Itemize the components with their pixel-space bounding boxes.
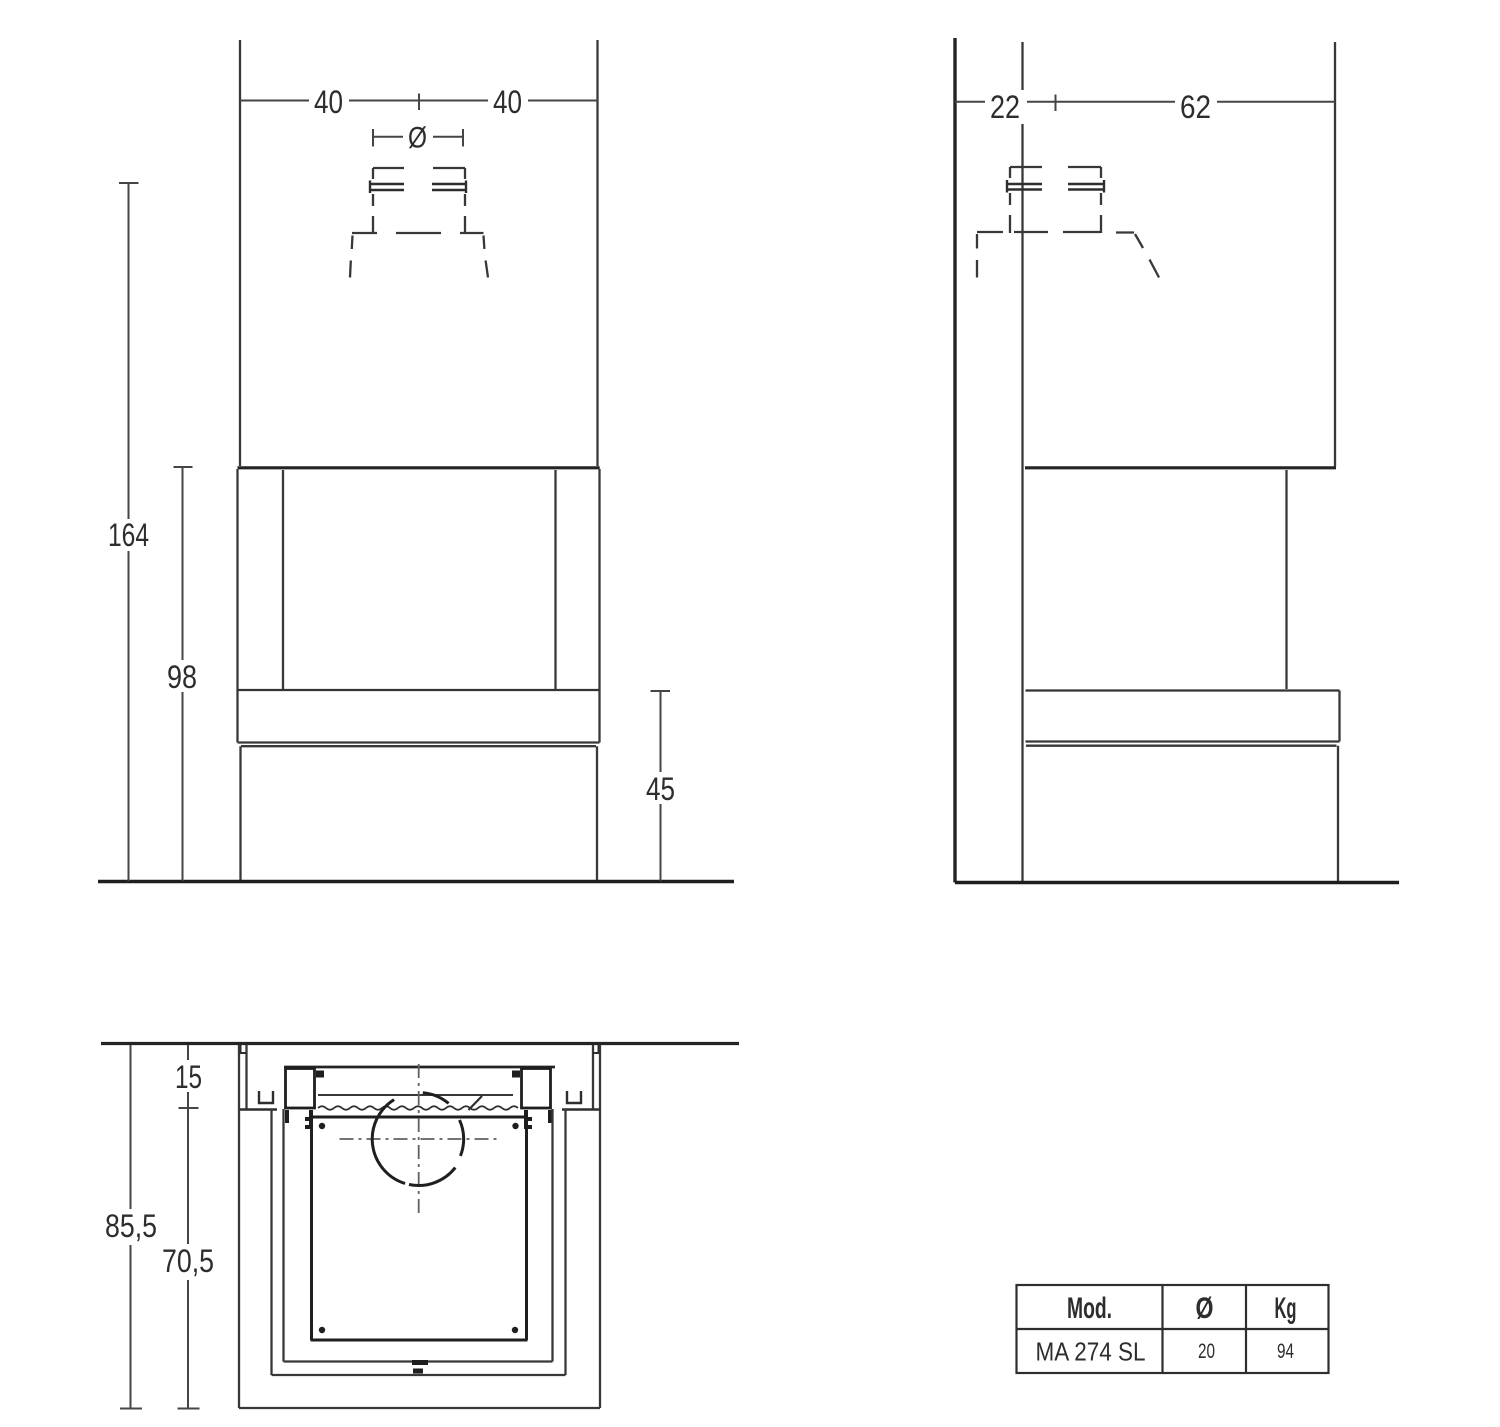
svg-text:70,5: 70,5 [162,1243,214,1279]
svg-text:Ø: Ø [1196,1292,1214,1325]
svg-text:40: 40 [493,84,522,120]
svg-text:MA 274 SL: MA 274 SL [1036,1337,1146,1367]
svg-text:Ø: Ø [408,122,427,155]
svg-text:40: 40 [314,84,343,120]
svg-text:45: 45 [646,771,675,807]
svg-text:98: 98 [167,659,197,695]
svg-text:22: 22 [990,89,1020,125]
svg-text:Mod.: Mod. [1067,1292,1112,1325]
svg-text:20: 20 [1198,1340,1215,1363]
svg-text:85,5: 85,5 [105,1208,157,1244]
svg-text:Kg: Kg [1275,1292,1297,1325]
svg-text:94: 94 [1277,1340,1294,1363]
svg-text:15: 15 [175,1059,202,1095]
svg-text:164: 164 [108,517,149,553]
svg-text:62: 62 [1180,89,1211,125]
